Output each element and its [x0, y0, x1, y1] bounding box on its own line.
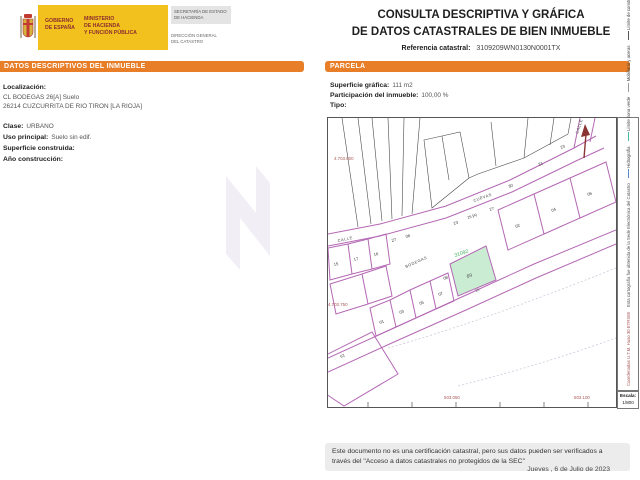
superficie-grafica-row: Superficie gráfica:111 m2	[330, 82, 413, 89]
lot-number: 03	[399, 308, 406, 315]
tipo-row: Tipo:	[330, 102, 350, 109]
page-title: CONSULTA DESCRIPTIVA Y GRÁFICA DE DATOS …	[330, 7, 632, 42]
grid-ticks	[368, 402, 588, 407]
disclaimer-line1: Este documento no es una certificación c…	[332, 447, 623, 457]
path-lines-layer	[388, 268, 616, 386]
lot-number: 02	[515, 222, 522, 229]
section-header-parcela: PARCELA	[325, 61, 630, 72]
legend-item-zona-verde: Límite zona verde	[626, 97, 631, 142]
zona-verde-line-sample	[628, 132, 629, 141]
localizacion-label: Localización:	[3, 84, 46, 91]
uso-row: Uso principal:Suelo sin edif.	[3, 134, 91, 141]
house-number: 16	[373, 251, 379, 257]
participacion-row: Participación del inmueble:100,00 %	[330, 92, 448, 99]
document-date: Jueves , 6 de Julio de 2023	[420, 466, 610, 473]
scale-value: 1/800	[622, 400, 634, 405]
cadastral-document-page: GOBIERNO DE ESPAÑA MINISTERIO DE HACIEND…	[0, 0, 640, 480]
legend-coordinates-text: Coordenadas U.T.M. Huso 30 ETRS89	[626, 312, 631, 386]
cadastral-map: 4.703.800 4.703.750 503.050 503.100 CALL…	[327, 117, 617, 408]
scale-box: Escala:1/800	[617, 391, 639, 409]
map-legend-content: Coordenadas U.T.M. Huso 30 ETRS89 Esta c…	[621, 124, 636, 386]
house-number: 15	[333, 261, 339, 267]
mobiliario-line-sample	[628, 83, 629, 92]
scale-label: Escala:	[618, 392, 638, 399]
house-number: 30	[508, 182, 515, 189]
referencia-value: 3109209WN0130N0001TX	[476, 45, 560, 52]
legend-item-construcciones: Límite de construcciones	[626, 0, 631, 40]
legend-note-text: Esta cartografía fue obtenida de la Sede…	[626, 183, 631, 307]
ministerio-text: MINISTERIO DE HACIENDA Y FUNCIÓN PÚBLICA	[84, 16, 137, 36]
coordinate-label-bottom-left: 503.050	[444, 395, 460, 400]
house-number: 27	[391, 237, 397, 243]
house-number: 17	[353, 256, 359, 262]
street-label-calle-exit: CALLE	[574, 118, 583, 134]
lot-number: 07	[438, 290, 445, 297]
clase-row: Clase:URBANO	[3, 123, 54, 130]
lot-number: 06	[587, 190, 594, 197]
lot-number: 04	[551, 206, 558, 213]
lot-number: 61	[339, 352, 346, 359]
coordinate-label-top: 4.703.800	[334, 156, 354, 161]
coordinate-label-bottom-right: 503.100	[574, 395, 590, 400]
hidrografia-line-sample	[628, 169, 629, 178]
referencia-catastral: Referencia catastral:3109209WN0130N0001T…	[330, 45, 632, 52]
house-number: 06	[405, 233, 411, 239]
spain-coat-of-arms-icon	[19, 8, 37, 53]
gobierno-text: GOBIERNO DE ESPAÑA	[45, 18, 75, 32]
gobierno-banner: GOBIERNO DE ESPAÑA MINISTERIO DE HACIEND…	[38, 5, 168, 50]
coordinate-label-left: 4.703.750	[328, 302, 348, 307]
lot-number: 01	[379, 318, 386, 325]
localizacion-line2: 26214 CUZCURRITA DE RIO TIRON [LA RIOJA]	[3, 103, 142, 110]
superficie-construida-row: Superficie construida:	[3, 145, 78, 152]
house-number: 25 [A]	[467, 213, 477, 220]
house-number: 23	[453, 219, 460, 226]
localizacion-line1: CL BODEGAS 26[A] Suelo	[3, 94, 79, 101]
direccion-general-text: DIRECCIÓN GENERAL DEL CATASTRO	[171, 33, 225, 45]
section-header-datos: DATOS DESCRIPTIVOS DEL INMUEBLE	[0, 61, 304, 72]
referencia-label: Referencia catastral:	[402, 45, 471, 52]
map-legend: Coordenadas U.T.M. Huso 30 ETRS89 Esta c…	[617, 117, 639, 391]
building-lines-layer	[342, 118, 571, 227]
house-number: 26	[475, 288, 480, 293]
construcciones-line-sample	[628, 31, 629, 40]
anio-construccion-row: Año construcción:	[3, 156, 66, 163]
legend-item-hidrografia: Hidrografía	[626, 146, 631, 178]
lot-number: 05	[419, 299, 426, 306]
secretaria-box: SECRETARÍA DE ESTADO DE HACIENDA	[171, 6, 231, 24]
legend-item-mobiliario: Mobiliario y aceras	[626, 45, 631, 91]
street-label-bodegas: BODEGAS	[404, 255, 427, 269]
north-arrow-icon	[581, 124, 590, 158]
house-number: 27	[489, 205, 496, 212]
watermark-logo	[208, 158, 308, 293]
house-number: 23	[560, 143, 567, 150]
